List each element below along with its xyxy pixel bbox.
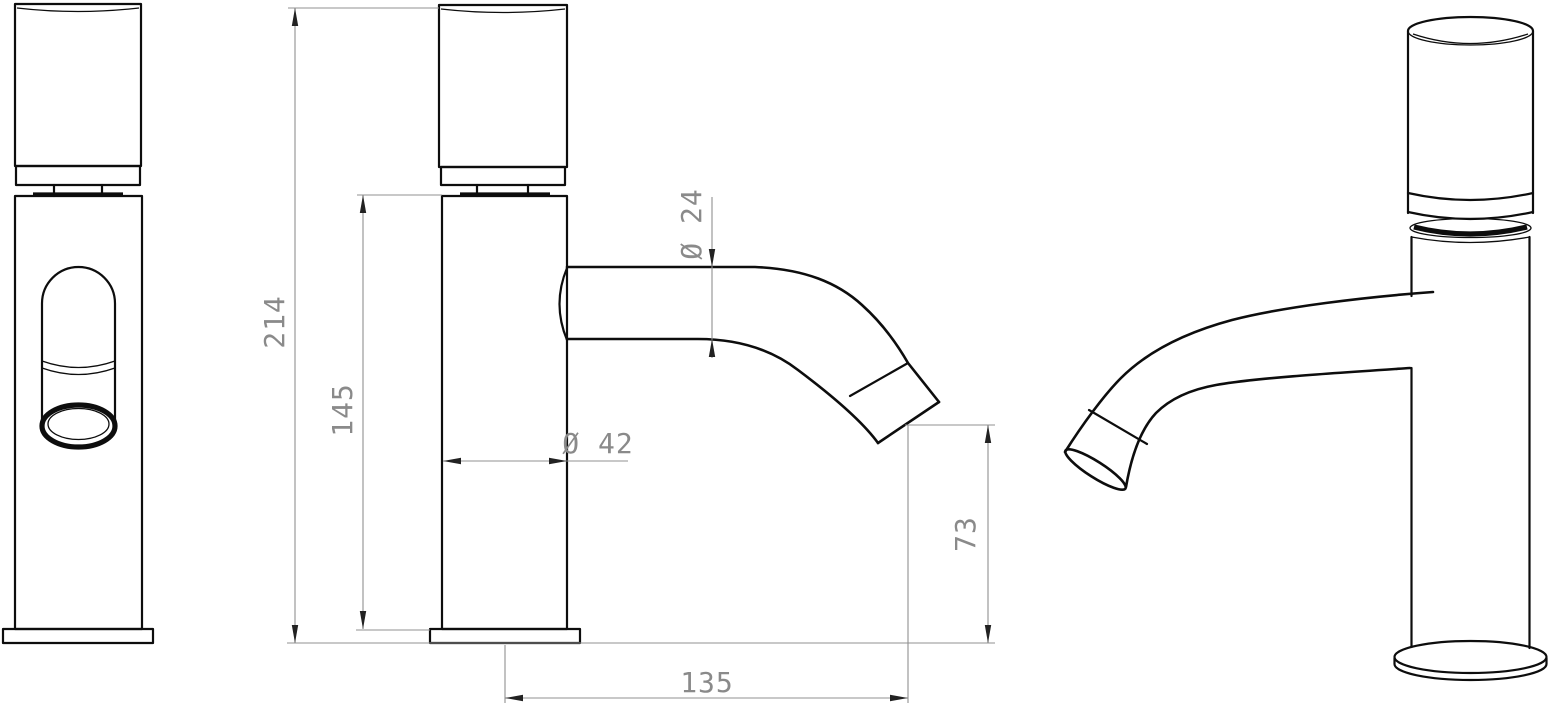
body-front: [15, 196, 142, 629]
spout-collar-persp: [1089, 410, 1147, 444]
technical-drawing-canvas: 214 145 Ø 24 Ø 42: [0, 0, 1550, 707]
handle-top-edge: [17, 8, 139, 12]
dim-label-145: 145: [326, 383, 359, 437]
dimension-annotations: 214 145 Ø 24 Ø 42: [258, 8, 995, 703]
arrowhead-left: [443, 458, 461, 464]
outlet-ring-front: [42, 405, 115, 447]
dim-body-diameter: Ø 42: [443, 427, 634, 464]
base-plate-side: [430, 629, 580, 643]
arrowhead-left: [505, 695, 523, 701]
dim-body-height: 145: [326, 195, 442, 630]
body-side: [442, 196, 567, 629]
arrowhead-down: [360, 611, 366, 629]
arrowhead-up: [985, 425, 991, 443]
spout-bottom-outline-persp: [1126, 368, 1410, 487]
dim-label-73: 73: [949, 516, 982, 552]
outlet-bore-front: [48, 409, 109, 440]
side-view: [430, 5, 939, 643]
arrowhead-down: [985, 625, 991, 643]
spout-arch-front: [42, 267, 115, 424]
arrowhead-up: [360, 195, 366, 213]
arrowhead-down: [292, 625, 298, 643]
arrowhead-right: [890, 695, 908, 701]
dim-outlet-height: 73: [905, 425, 995, 703]
gasket-ring: [1414, 227, 1527, 234]
spout-collar-side: [850, 363, 908, 396]
spout-end-face-persp: [1061, 444, 1129, 496]
spout-rear-cap-side: [560, 268, 568, 340]
drawing-svg: 214 145 Ø 24 Ø 42: [0, 0, 1550, 707]
dim-spout-reach: 135: [505, 645, 908, 703]
handle-band-side: [441, 167, 565, 185]
base-plate-front: [3, 629, 153, 643]
arrowhead-down: [709, 249, 715, 267]
dim-label-d24: Ø 24: [675, 188, 708, 259]
spout-collar-front-2: [42, 368, 115, 375]
handle-side: [439, 5, 567, 167]
arrowhead-up: [709, 339, 715, 357]
dim-label-214: 214: [258, 295, 291, 349]
handle-band-top-persp: [1408, 193, 1533, 200]
handle-front: [15, 4, 141, 166]
dim-total-height: 214: [258, 8, 439, 643]
dim-label-d42: Ø 42: [562, 427, 633, 460]
handle-top-rim-far: [1408, 17, 1533, 31]
spout-top-outline-side: [567, 267, 939, 402]
spout-collar-front-1: [42, 361, 115, 368]
handle-band-front: [16, 166, 140, 185]
dim-spout-diameter: Ø 24: [675, 188, 715, 358]
handle-top-edge-side: [441, 9, 565, 13]
base-disk-top: [1395, 641, 1547, 673]
perspective-view: [1061, 17, 1546, 680]
arrowhead-up: [292, 8, 298, 26]
dim-label-135: 135: [680, 666, 734, 699]
front-view: [3, 4, 153, 643]
